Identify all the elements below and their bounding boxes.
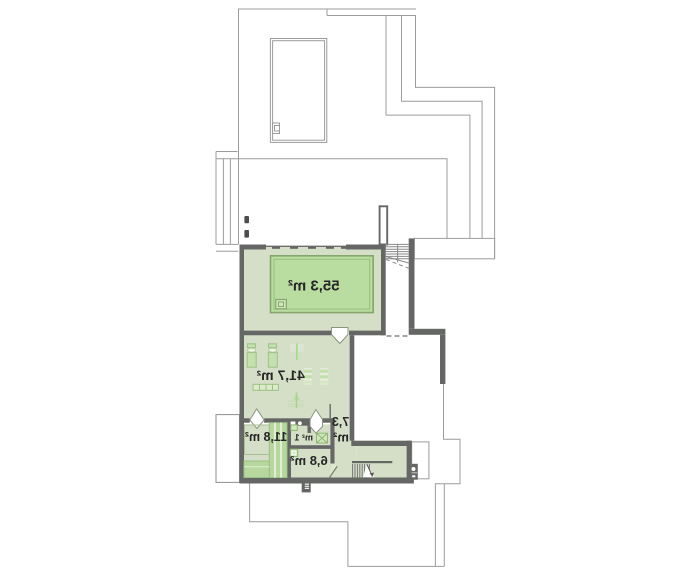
svg-text:7,3: 7,3 xyxy=(332,415,349,429)
svg-text:m² 1: m² 1 xyxy=(295,433,314,443)
svg-text:6,8 m²: 6,8 m² xyxy=(290,453,328,468)
svg-text:41,7 m²: 41,7 m² xyxy=(256,367,305,383)
svg-text:11,8 m²: 11,8 m² xyxy=(245,430,287,444)
svg-text:m²: m² xyxy=(332,429,349,444)
svg-text:55,3 m²: 55,3 m² xyxy=(288,277,340,294)
